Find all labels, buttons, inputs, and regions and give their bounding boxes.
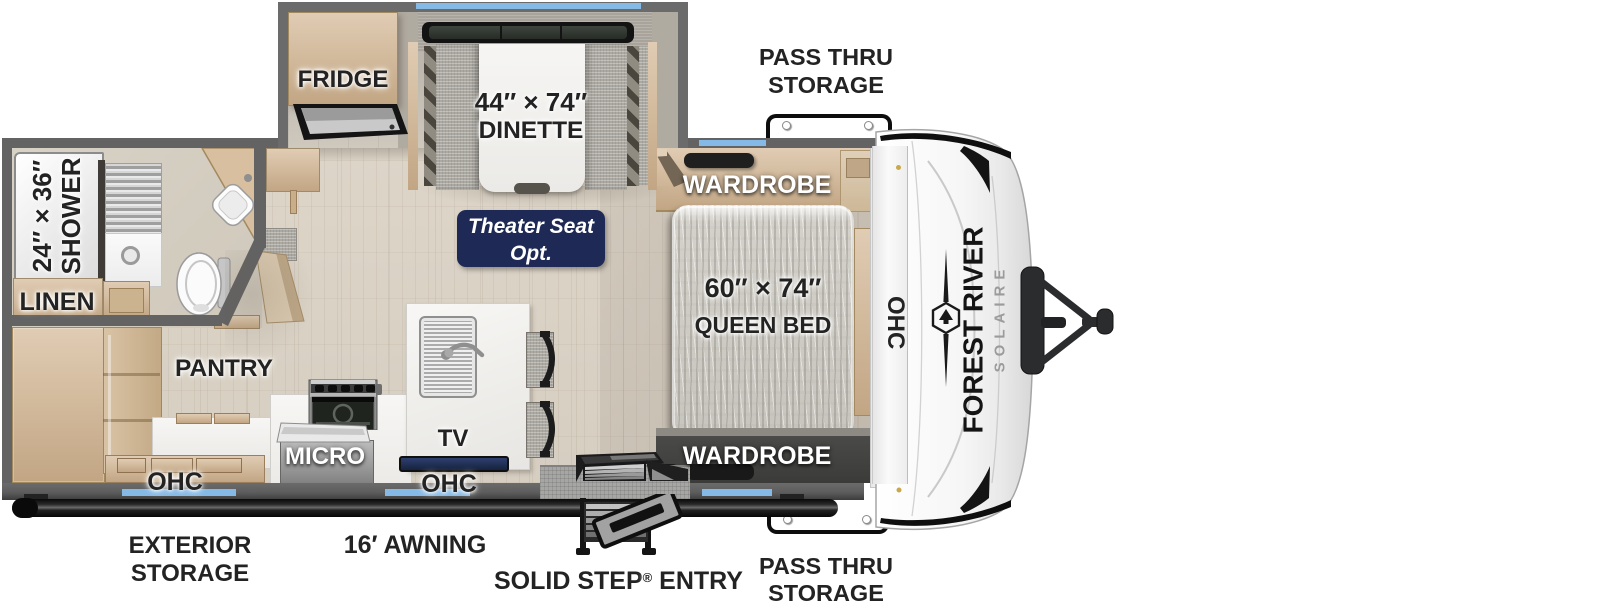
svg-text:FOREST RIVER: FOREST RIVER (958, 227, 989, 434)
svg-text:SOLAIRE: SOLAIRE (992, 264, 1009, 373)
